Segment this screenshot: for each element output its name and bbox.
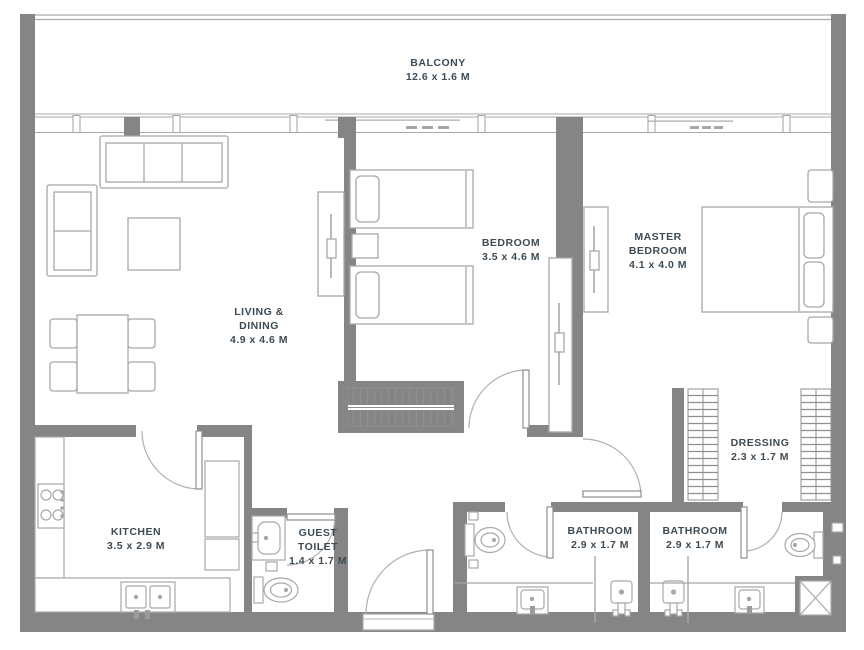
room-label-bathroom-2: BATHROOM 2.9 x 1.7 M	[640, 524, 750, 552]
tv-console-bedroom	[549, 258, 572, 432]
stove	[38, 484, 64, 528]
bedroom-door	[469, 370, 529, 428]
twin-bed-2	[350, 266, 473, 324]
bathroom-2-shower	[663, 581, 684, 616]
room-name: BATHROOM	[640, 524, 750, 538]
bedroom-wardrobe	[348, 388, 454, 426]
floor-plan: BALCONY 12.6 x 1.6 M LIVING & DINING 4.9…	[0, 0, 864, 650]
master-bedroom-door	[583, 439, 641, 497]
two-seat-sofa	[47, 185, 97, 276]
room-name: BEDROOM	[456, 236, 566, 250]
room-dimensions: 2.9 x 1.7 M	[640, 538, 750, 552]
room-name: MASTER BEDROOM	[615, 230, 701, 258]
sliding-door-marks	[325, 120, 733, 130]
room-name: BATHROOM	[545, 524, 655, 538]
room-label-bedroom: BEDROOM 3.5 x 4.6 M	[456, 236, 566, 264]
room-label-kitchen: KITCHEN 3.5 x 2.9 M	[81, 525, 191, 553]
room-dimensions: 2.3 x 1.7 M	[705, 450, 815, 464]
room-dimensions: 3.5 x 4.6 M	[456, 250, 566, 264]
room-dimensions: 2.9 x 1.7 M	[545, 538, 655, 552]
guest-washbasin	[252, 516, 285, 560]
nightstand-bottom	[808, 317, 833, 343]
room-name: KITCHEN	[81, 525, 191, 539]
nightstand-top	[808, 170, 833, 202]
nightstand	[352, 234, 378, 258]
three-seat-sofa	[100, 136, 228, 188]
room-name: DRESSING	[705, 436, 815, 450]
kitchen-door	[142, 431, 202, 489]
bathroom-2-washbasin	[735, 587, 764, 614]
flush-plate	[266, 562, 277, 571]
balcony-rail	[35, 15, 831, 20]
kitchen-tall-unit-1	[205, 461, 239, 537]
twin-bed-1	[350, 170, 473, 228]
room-label-bathroom-1: BATHROOM 2.9 x 1.7 M	[545, 524, 655, 552]
coffee-table	[128, 218, 180, 270]
dining-table-set	[50, 315, 155, 393]
double-bed	[702, 207, 833, 312]
room-label-balcony: BALCONY 12.6 x 1.6 M	[378, 56, 498, 84]
tv-console-living	[318, 192, 344, 296]
room-dimensions: 1.4 x 1.7 M	[288, 554, 348, 568]
guest-toilet-wc	[254, 577, 298, 603]
service-shaft	[800, 581, 831, 615]
living-dining-furniture	[47, 136, 344, 393]
room-name: LIVING & DINING	[221, 305, 297, 333]
room-dimensions: 4.9 x 4.6 M	[221, 333, 297, 347]
room-dimensions: 12.6 x 1.6 M	[378, 70, 498, 84]
tv-console-master	[584, 207, 608, 312]
bathroom-1-wc	[465, 512, 505, 568]
room-name: GUEST TOILET	[288, 526, 348, 554]
room-label-guest-toilet: GUEST TOILET 1.4 x 1.7 M	[288, 526, 348, 568]
window-band	[35, 114, 831, 133]
bathroom-1-shower	[611, 581, 632, 616]
room-label-master-bedroom: MASTER BEDROOM 4.1 x 4.0 M	[615, 230, 701, 272]
room-dimensions: 3.5 x 2.9 M	[81, 539, 191, 553]
room-dimensions: 4.1 x 4.0 M	[615, 258, 701, 272]
room-label-dressing: DRESSING 2.3 x 1.7 M	[705, 436, 815, 464]
room-label-living-dining: LIVING & DINING 4.9 x 4.6 M	[221, 305, 297, 347]
kitchen-tall-unit-2	[205, 539, 239, 570]
room-name: BALCONY	[378, 56, 498, 70]
bathroom-1-washbasin	[517, 587, 548, 614]
entrance-door	[363, 550, 434, 630]
